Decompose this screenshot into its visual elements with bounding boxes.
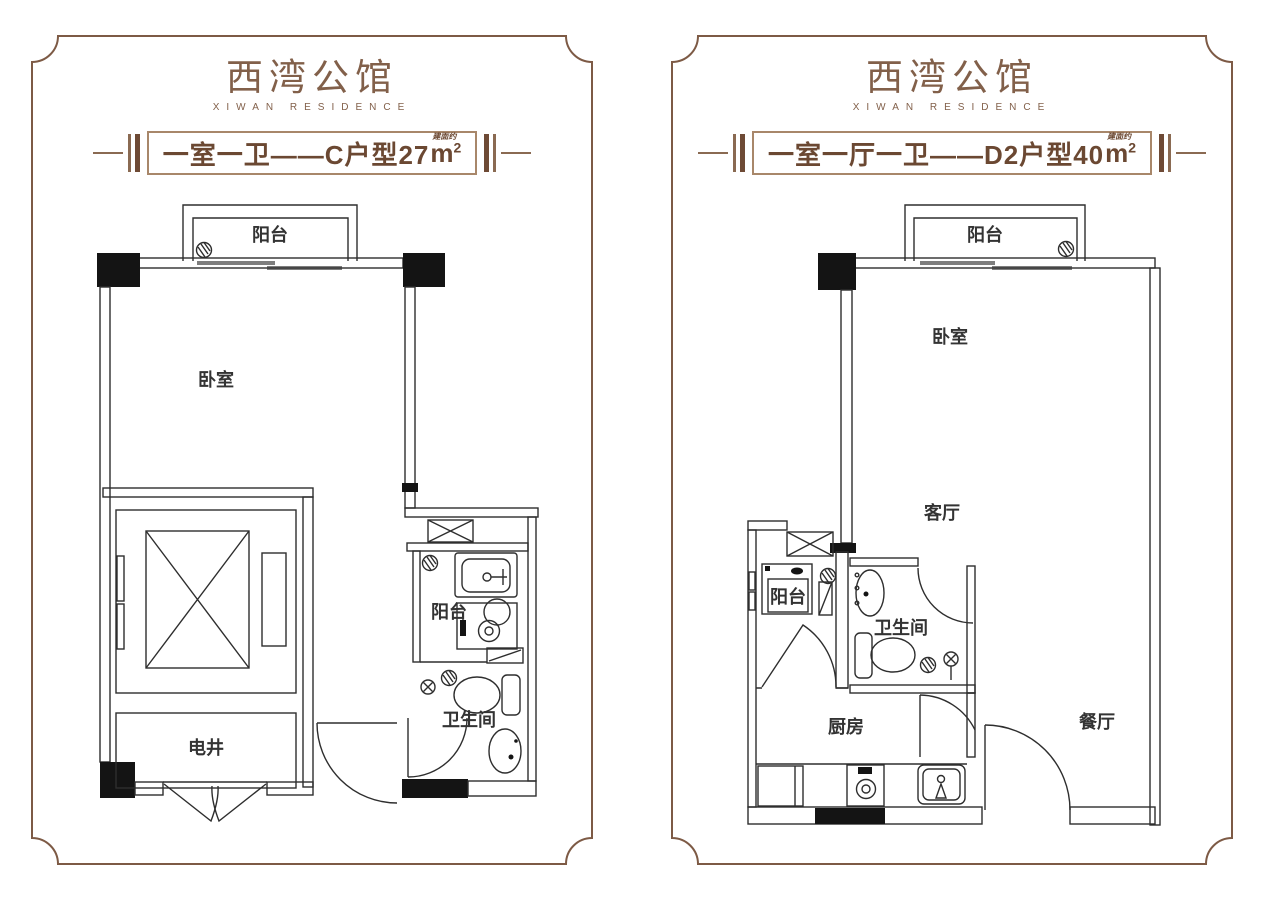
- unit-type-text: 一室一卫——C户型27: [163, 135, 430, 172]
- brand-title: 西湾公馆: [668, 58, 1236, 99]
- brand-header: 西湾公馆 XIWAN RESIDENCE: [668, 58, 1236, 113]
- area-note: 建面约: [1107, 131, 1131, 142]
- unit-banner: 一室一卫——C户型27建面约m2: [28, 131, 596, 175]
- brand-subtitle: XIWAN RESIDENCE: [28, 102, 596, 113]
- unit-type-text: 一室一厅一卫——D2户型40: [768, 135, 1104, 172]
- banner-ornament-left: [698, 134, 752, 172]
- area-unit: m: [430, 138, 453, 168]
- unit-banner-box: 一室一厅一卫——D2户型40建面约m2: [752, 131, 1152, 175]
- floorplan-panel-d2: 西湾公馆 XIWAN RESIDENCE 一室一厅一卫——D2户型40建面约m2: [668, 32, 1236, 868]
- floorplan-sheet: 西湾公馆 XIWAN RESIDENCE 一室一卫——C户型27建面约m2: [0, 0, 1280, 906]
- brand-title: 西湾公馆: [28, 58, 596, 99]
- unit-banner: 一室一厅一卫——D2户型40建面约m2: [668, 131, 1236, 175]
- area-note: 建面约: [432, 131, 456, 142]
- banner-ornament-right: [477, 134, 531, 172]
- floorplan-panel-c: 西湾公馆 XIWAN RESIDENCE 一室一卫——C户型27建面约m2: [28, 32, 596, 868]
- brand-header: 西湾公馆 XIWAN RESIDENCE: [28, 58, 596, 113]
- area-unit: m: [1105, 138, 1128, 168]
- banner-ornament-right: [1152, 134, 1206, 172]
- brand-subtitle: XIWAN RESIDENCE: [668, 102, 1236, 113]
- banner-ornament-left: [93, 134, 147, 172]
- unit-banner-box: 一室一卫——C户型27建面约m2: [147, 131, 478, 175]
